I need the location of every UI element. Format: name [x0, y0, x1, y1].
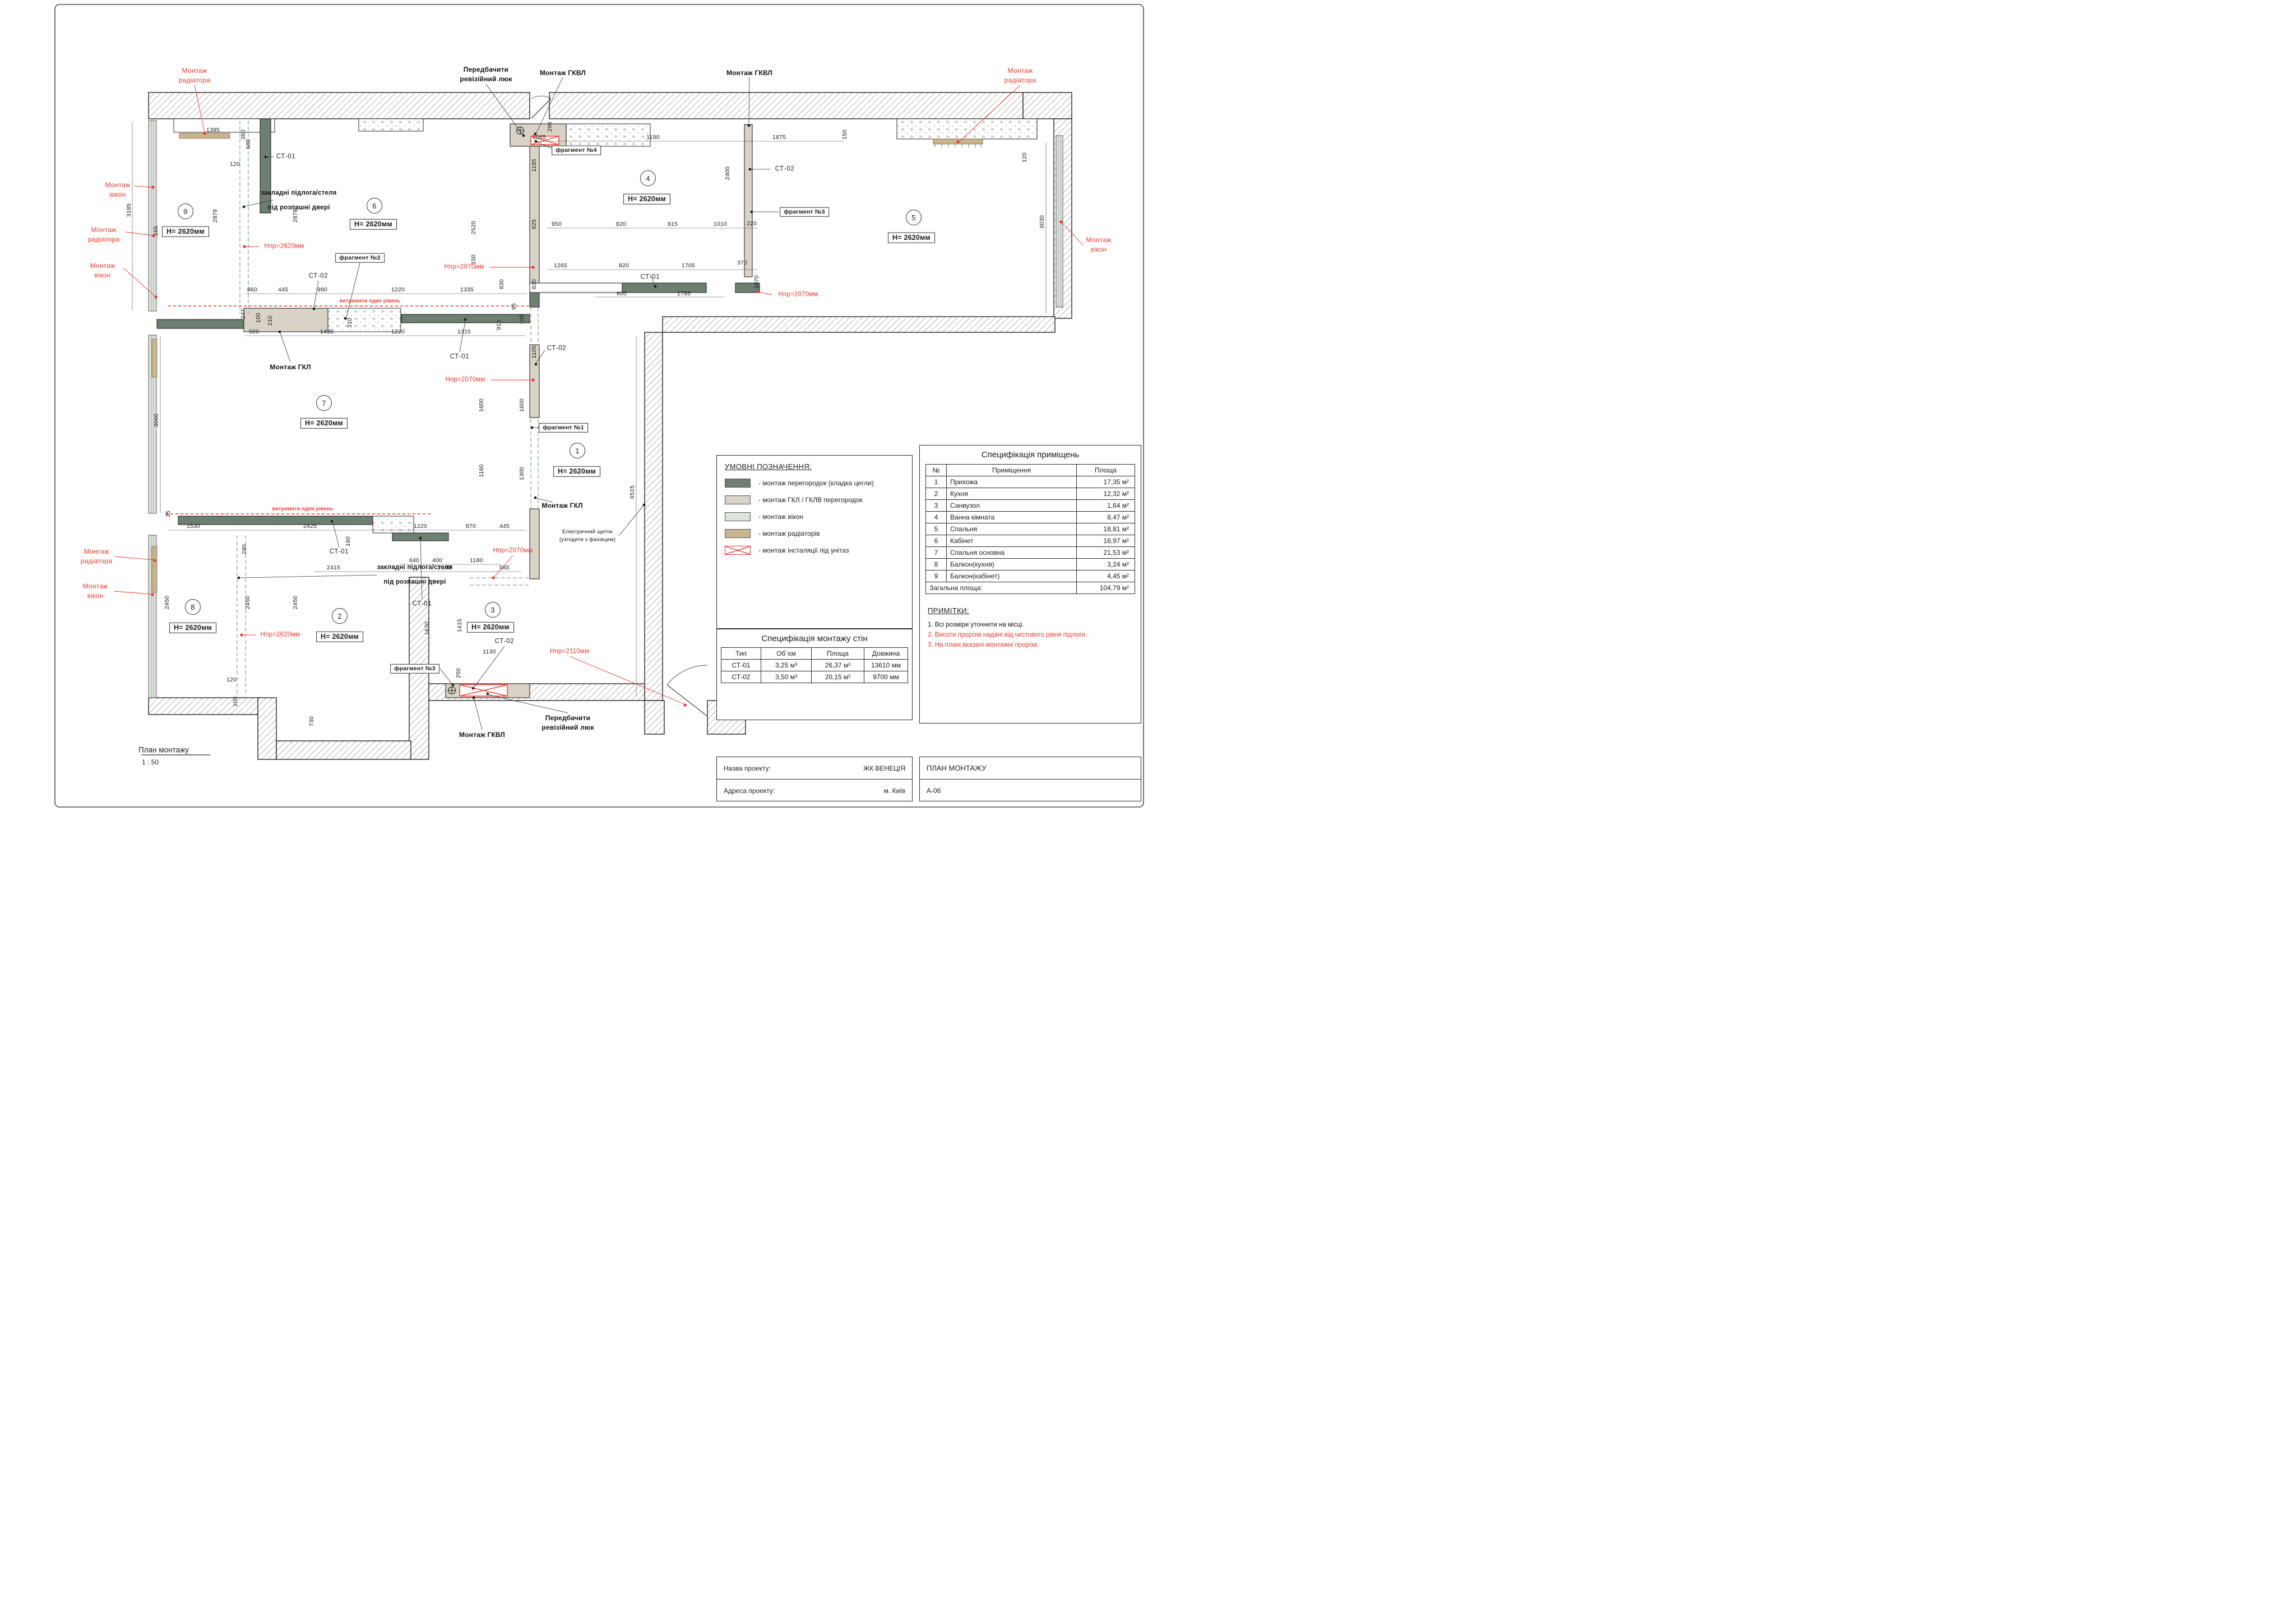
plan-annotation: СТ-01: [450, 354, 470, 360]
plan-annotation: 445: [278, 287, 288, 293]
plan-annotation: Нпр=2110мм: [550, 648, 589, 655]
address-label: Адреса проекту:: [724, 787, 775, 795]
plan-annotation: Монтаж ГКВЛ: [540, 69, 586, 76]
plan-annotation: Монтаж: [1086, 237, 1112, 243]
plan-annotation: радіатора: [88, 236, 120, 243]
note-line: 2. Висоти прорізів надані від чистового …: [928, 632, 1135, 638]
plan-annotation: 820: [619, 263, 629, 269]
plan-annotation: СТ-01: [276, 154, 296, 160]
plan-annotation: 1315: [457, 329, 471, 335]
room-spec-rows: 1 Прихожа 17,35 м² 2 Кухня 12,32 м² 3 Са…: [926, 476, 1135, 582]
plan-annotation: фрагмент №1: [539, 423, 588, 433]
plan-annotation: H= 2620мм: [467, 622, 514, 633]
sheet-title: ПЛАН МОНТАЖУ: [927, 764, 987, 772]
plan-annotation: витримати один рівень: [272, 507, 334, 512]
col-volume: Об`єм: [761, 648, 811, 659]
room-spec-panel: Специфікація приміщень № Приміщення Площ…: [919, 445, 1141, 724]
plan-annotation: 370: [737, 260, 747, 266]
plan-annotation: 400: [432, 558, 442, 564]
plan-annotation: H= 2620мм: [888, 233, 935, 243]
plan-annotation: вікон: [110, 191, 126, 198]
sheet-title-row: ПЛАН МОНТАЖУ: [920, 757, 1141, 779]
col-room: Приміщення: [946, 465, 1076, 476]
plan-annotation: 100: [256, 313, 262, 323]
plan-annotation: СТ-01: [641, 274, 660, 281]
plan-annotation: під розпашні двері: [268, 205, 330, 211]
plan-annotation: H= 2620мм: [316, 632, 363, 642]
sheet-code-row: А-06: [920, 779, 1141, 801]
plan-annotation: фрагмент №3: [390, 664, 439, 674]
plan-annotation: вікон: [95, 272, 111, 279]
plan-annotation: 35: [165, 511, 172, 517]
plan-annotation: 730: [309, 716, 315, 726]
plan-annotation: 2520: [471, 221, 477, 234]
legend-panel: УМОВНІ ПОЗНАЧЕННЯ: - монтаж перегородок …: [716, 455, 913, 629]
plan-annotation: H= 2620мм: [169, 623, 216, 633]
plan-annotation: СТ-02: [547, 345, 567, 352]
plan-annotation: 1395: [206, 127, 220, 133]
total-value: 104,79 м²: [1076, 582, 1135, 593]
doors: [531, 96, 707, 716]
plan-annotation: під розпашні двері: [384, 579, 446, 586]
plan-annotation: 910: [496, 320, 502, 330]
plan-annotation: радіатора: [179, 77, 211, 84]
plan-annotation: 1130: [483, 649, 496, 655]
plan-annotation: 640: [409, 558, 419, 564]
plan-annotation: 6515: [629, 485, 636, 499]
plan-annotation: (узгодити з фахівцем): [559, 537, 615, 542]
col-num: №: [926, 465, 946, 476]
legend-label: - монтаж вікон: [758, 513, 803, 521]
plan-annotation: Монтаж ГКВЛ: [726, 69, 772, 76]
plan-annotation: 860: [247, 287, 257, 293]
plan-annotation: H= 2620мм: [162, 226, 209, 237]
plan-annotation: Нпр=2070мм: [444, 264, 484, 271]
plan-annotation: СТ-02: [309, 273, 328, 280]
plan-annotation: Монтаж: [182, 67, 207, 74]
plan-scale-value: 1 : 50: [142, 758, 159, 766]
plan-annotation: радіатора: [1004, 77, 1036, 84]
plan-annotation: Нпр=2620мм: [264, 243, 304, 250]
plan-annotation: 210: [267, 316, 274, 326]
plan-annotation: 1300: [519, 467, 525, 480]
plan-annotation: 1530: [187, 523, 200, 530]
plan-annotation: 6: [367, 198, 382, 214]
col-area: Площа: [1076, 465, 1135, 476]
plan-annotation: 165: [153, 226, 159, 236]
table-header: № Приміщення Площа: [926, 465, 1135, 476]
plan-annotation: 290: [547, 122, 553, 132]
plan-annotation: 990: [317, 287, 327, 293]
plan-annotation: 585: [499, 565, 510, 571]
plan-annotation: 1415: [457, 619, 463, 632]
plan-annotation: ревізійний люк: [541, 724, 594, 731]
table-row: 9 Балкон(кабінет) 4,45 м²: [926, 570, 1135, 582]
plan-annotation: H= 2620мм: [553, 466, 600, 477]
plan-annotation: 2425: [303, 523, 317, 530]
plan-annotation: 250: [456, 668, 462, 678]
address-value: м. Київ: [884, 787, 905, 795]
wall-spec-table: Тип Об`єм Площа Довжина СТ-01 3,25 м³ 26…: [721, 647, 908, 683]
plan-annotation: 3: [485, 602, 501, 618]
plan-annotation: 1010: [714, 221, 727, 228]
table-row: 2 Кухня 12,32 м²: [926, 488, 1135, 499]
room-spec-title: Специфікація приміщень: [920, 446, 1141, 460]
legend-item: - монтаж перегородок (кладка цегли): [725, 479, 912, 488]
plan-annotation: 1785: [677, 291, 691, 297]
plan-annotation: 120: [230, 161, 240, 168]
plan-annotation: ревізійний люк: [460, 76, 512, 82]
plan-annotation: 2450: [164, 596, 170, 609]
table-row: СТ-01 3,25 м³ 26,37 м² 13610 мм: [721, 659, 908, 671]
total-row: Загальна площа: 104,79 м²: [926, 582, 1135, 593]
plan-annotation: 7: [316, 395, 332, 411]
legend-label: - монтаж ГКЛ / ГКЛВ перегородок: [758, 496, 863, 504]
plan-annotation: 1190: [646, 135, 659, 141]
plan-annotation: 1600: [479, 398, 485, 412]
plan-annotation: 120: [1022, 152, 1028, 163]
plan-annotation: 870: [466, 523, 476, 530]
wall-spec-title: Специфікація монтажу стін: [717, 629, 912, 643]
plan-annotation: Нпр=2070мм: [445, 377, 485, 383]
plan-annotation: 830: [531, 279, 538, 289]
plan-annotation: 680: [246, 139, 252, 149]
col-length: Довжина: [864, 648, 908, 659]
plan-annotation: 8: [185, 599, 201, 615]
plan-annotation: 1600: [519, 398, 525, 412]
plan-annotation: 100: [519, 314, 525, 324]
project-row: Назва проекту: ЖК ВЕНЕЦІЯ: [717, 757, 912, 779]
plan-annotation: 820: [616, 221, 626, 228]
plan-annotation: 1875: [772, 135, 786, 141]
plan-annotation: Передбачити: [464, 66, 509, 73]
plan-annotation: 2: [332, 608, 348, 624]
table-row: СТ-02 3,50 м³ 20,15 м² 9700 мм: [721, 671, 908, 683]
plan-annotation: 2400: [725, 166, 731, 180]
plan-annotation: фрагмент №4: [552, 146, 601, 155]
titleblock-right: ПЛАН МОНТАЖУ А-06: [919, 757, 1141, 801]
plan-annotation: 1220: [391, 287, 405, 293]
plan-annotation: 9: [178, 203, 193, 219]
plan-annotation: 1220: [414, 523, 427, 530]
plan-annotation: Монтаж: [105, 182, 131, 188]
table-header: Тип Об`єм Площа Довжина: [721, 648, 908, 659]
legend-label: - монтаж радіаторів: [758, 530, 820, 537]
col-area: Площа: [811, 648, 864, 659]
plan-annotation: фрагмент №2: [335, 253, 385, 263]
plan-annotation: 445: [499, 523, 510, 530]
table-row: 8 Балкон(кухня) 3,24 м²: [926, 558, 1135, 570]
plan-annotation: 310: [347, 318, 353, 328]
plan-annotation: 1070: [754, 275, 760, 289]
project-label: Назва проекту:: [724, 764, 771, 772]
plan-annotation: закладні підлога/стеля: [261, 190, 336, 197]
plan-annotation: 2450: [293, 596, 299, 609]
toilet-installations: [460, 136, 559, 696]
address-row: Адреса проекту: м. Київ: [717, 779, 912, 801]
legend-swatch: [725, 495, 751, 504]
wall-spec-panel: Специфікація монтажу стін Тип Об`єм Площ…: [716, 629, 913, 720]
legend-title: УМОВНІ ПОЗНАЧЕННЯ:: [725, 462, 912, 471]
legend-label: - монтаж перегородок (кладка цегли): [758, 479, 874, 487]
plan-annotation: фрагмент №3: [780, 207, 829, 217]
plan-annotation: Монтаж: [91, 226, 117, 233]
plan-annotation: радіатора: [81, 558, 113, 564]
plan-annotation: 1160: [479, 464, 485, 477]
plan-annotation: 95: [511, 303, 517, 310]
table-row: 4 Ванна кімната 8,47 м²: [926, 511, 1135, 523]
legend-item: - монтаж вікон: [725, 512, 912, 521]
table-row: 6 Кабінет 16,97 м²: [926, 535, 1135, 546]
lintel-room9: [174, 119, 275, 132]
notes-title: ПРИМІТКИ:: [928, 606, 1135, 615]
project-value: ЖК ВЕНЕЦІЯ: [863, 764, 905, 772]
titleblock-left: Назва проекту: ЖК ВЕНЕЦІЯ Адреса проекту…: [716, 757, 913, 801]
plan-annotation: СТ-01: [413, 601, 432, 608]
note-line: 3. На плані вказані монтажні прорізи.: [928, 642, 1135, 648]
room-spec-table: № Приміщення Площа 1 Прихожа 17,35 м² 2 …: [925, 464, 1135, 594]
plan-annotation: 4: [640, 170, 656, 186]
plan-annotation: 2415: [327, 565, 340, 571]
legend-label: - монтаж інсталяції під унітаз: [758, 546, 849, 554]
plan-annotation: H= 2620мм: [350, 219, 397, 230]
notes-list: 1. Всі розміри уточнити на місці. 2. Вис…: [928, 622, 1135, 648]
plan-annotation: Нпр=2070мм: [778, 291, 818, 298]
plan-annotation: Монтаж: [84, 548, 109, 555]
plan-annotation: 1105: [531, 345, 538, 358]
plan-annotation: 920: [249, 329, 259, 335]
plan-annotation: 925: [531, 219, 538, 229]
legend-swatch: [725, 529, 751, 538]
plan-annotation: Монтаж ГКЛ: [541, 502, 583, 509]
plan-annotation: 1065: [533, 135, 546, 141]
plan-annotation: 815: [668, 221, 678, 228]
plan-annotation: Монтаж ГКВЛ: [459, 731, 505, 738]
plan-annotation: 280: [242, 544, 248, 554]
plan-annotation: вікон: [1091, 246, 1107, 253]
plan-annotation: 5: [906, 210, 922, 225]
plan-annotation: Нпр=2070мм: [493, 548, 533, 554]
plan-annotation: 1220: [391, 329, 405, 335]
plan-annotation: 3185: [126, 203, 132, 217]
plan-annotation: 2450: [245, 596, 251, 609]
plan-annotation: H= 2620мм: [300, 418, 348, 429]
table-row: 1 Прихожа 17,35 м²: [926, 476, 1135, 488]
plan-annotation: 150: [842, 129, 848, 140]
plan-annotation: 3000: [154, 414, 160, 427]
plan-annotation: 1180: [470, 558, 483, 564]
plan-annotation: 1335: [460, 287, 474, 293]
col-type: Тип: [721, 648, 761, 659]
plan-annotation: 100: [233, 697, 239, 707]
plan-annotation: 247: [240, 309, 247, 319]
plan-scale-title: План монтажу: [138, 746, 189, 754]
plan-annotation: СТ-02: [495, 638, 515, 645]
plan-annotation: 2878: [212, 209, 219, 222]
plan-annotation: Нпр=2620мм: [260, 632, 300, 638]
plan-annotation: 1185: [531, 159, 538, 171]
total-label: Загальна площа:: [926, 582, 1076, 593]
table-row: 7 Спальня основна 21,53 м²: [926, 546, 1135, 558]
plan-annotation: вікон: [87, 592, 104, 599]
drawing-sheet: МонтажрадіатораПередбачитиревізійний люк…: [0, 0, 1148, 811]
plan-annotation: Електричний щиток: [562, 529, 613, 535]
plan-annotation: Монтаж: [83, 583, 108, 590]
plan-annotation: Монтаж: [90, 262, 115, 269]
plan-annotation: 600: [617, 291, 627, 297]
legend-item: - монтаж ГКЛ / ГКЛВ перегородок: [725, 495, 912, 504]
legend-swatch: [725, 546, 751, 555]
plan-annotation: 1670: [424, 622, 430, 635]
plan-annotation: 830: [499, 279, 505, 289]
plan-annotation: 120: [226, 677, 237, 683]
legend-swatch: [725, 479, 751, 488]
plan-annotation: 1435: [320, 329, 334, 335]
plan-annotation: Монтаж: [1008, 67, 1033, 74]
note-line: 1. Всі розміри уточнити на місці.: [928, 622, 1135, 628]
wall-spec-rows: СТ-01 3,25 м³ 26,37 м² 13610 мм СТ-02 3,…: [721, 659, 908, 683]
plan-annotation: Передбачити: [545, 715, 591, 721]
plan-annotation: 2090: [438, 565, 451, 571]
plan-annotation: СТ-01: [330, 549, 349, 555]
table-row: 5 Спальня 18,81 м²: [926, 523, 1135, 535]
plan-annotation: H= 2620мм: [623, 194, 670, 205]
plan-annotation: 1265: [554, 263, 567, 269]
table-row: 3 Санвузол 1,64 м²: [926, 499, 1135, 511]
plan-annotation: 1705: [682, 263, 695, 269]
legend-item: - монтаж радіаторів: [725, 529, 912, 538]
plan-annotation: 360: [240, 129, 247, 140]
plan-annotation: 3030: [1039, 215, 1045, 229]
legend-list: - монтаж перегородок (кладка цегли) - мо…: [725, 479, 912, 555]
legend-item: - монтаж інсталяції під унітаз: [725, 546, 912, 555]
plan-annotation: 1: [570, 443, 585, 458]
level-lines: [165, 306, 529, 514]
plan-annotation: 220: [747, 221, 757, 227]
plan-annotation: витримати один рівень: [340, 299, 401, 304]
plan-annotation: СТ-02: [775, 166, 795, 173]
sheet-code: А-06: [927, 787, 941, 795]
plan-annotation: Монтаж ГКЛ: [270, 364, 311, 370]
plan-annotation: 160: [345, 536, 351, 546]
plan-annotation: 950: [552, 221, 562, 228]
legend-swatch: [725, 512, 751, 521]
